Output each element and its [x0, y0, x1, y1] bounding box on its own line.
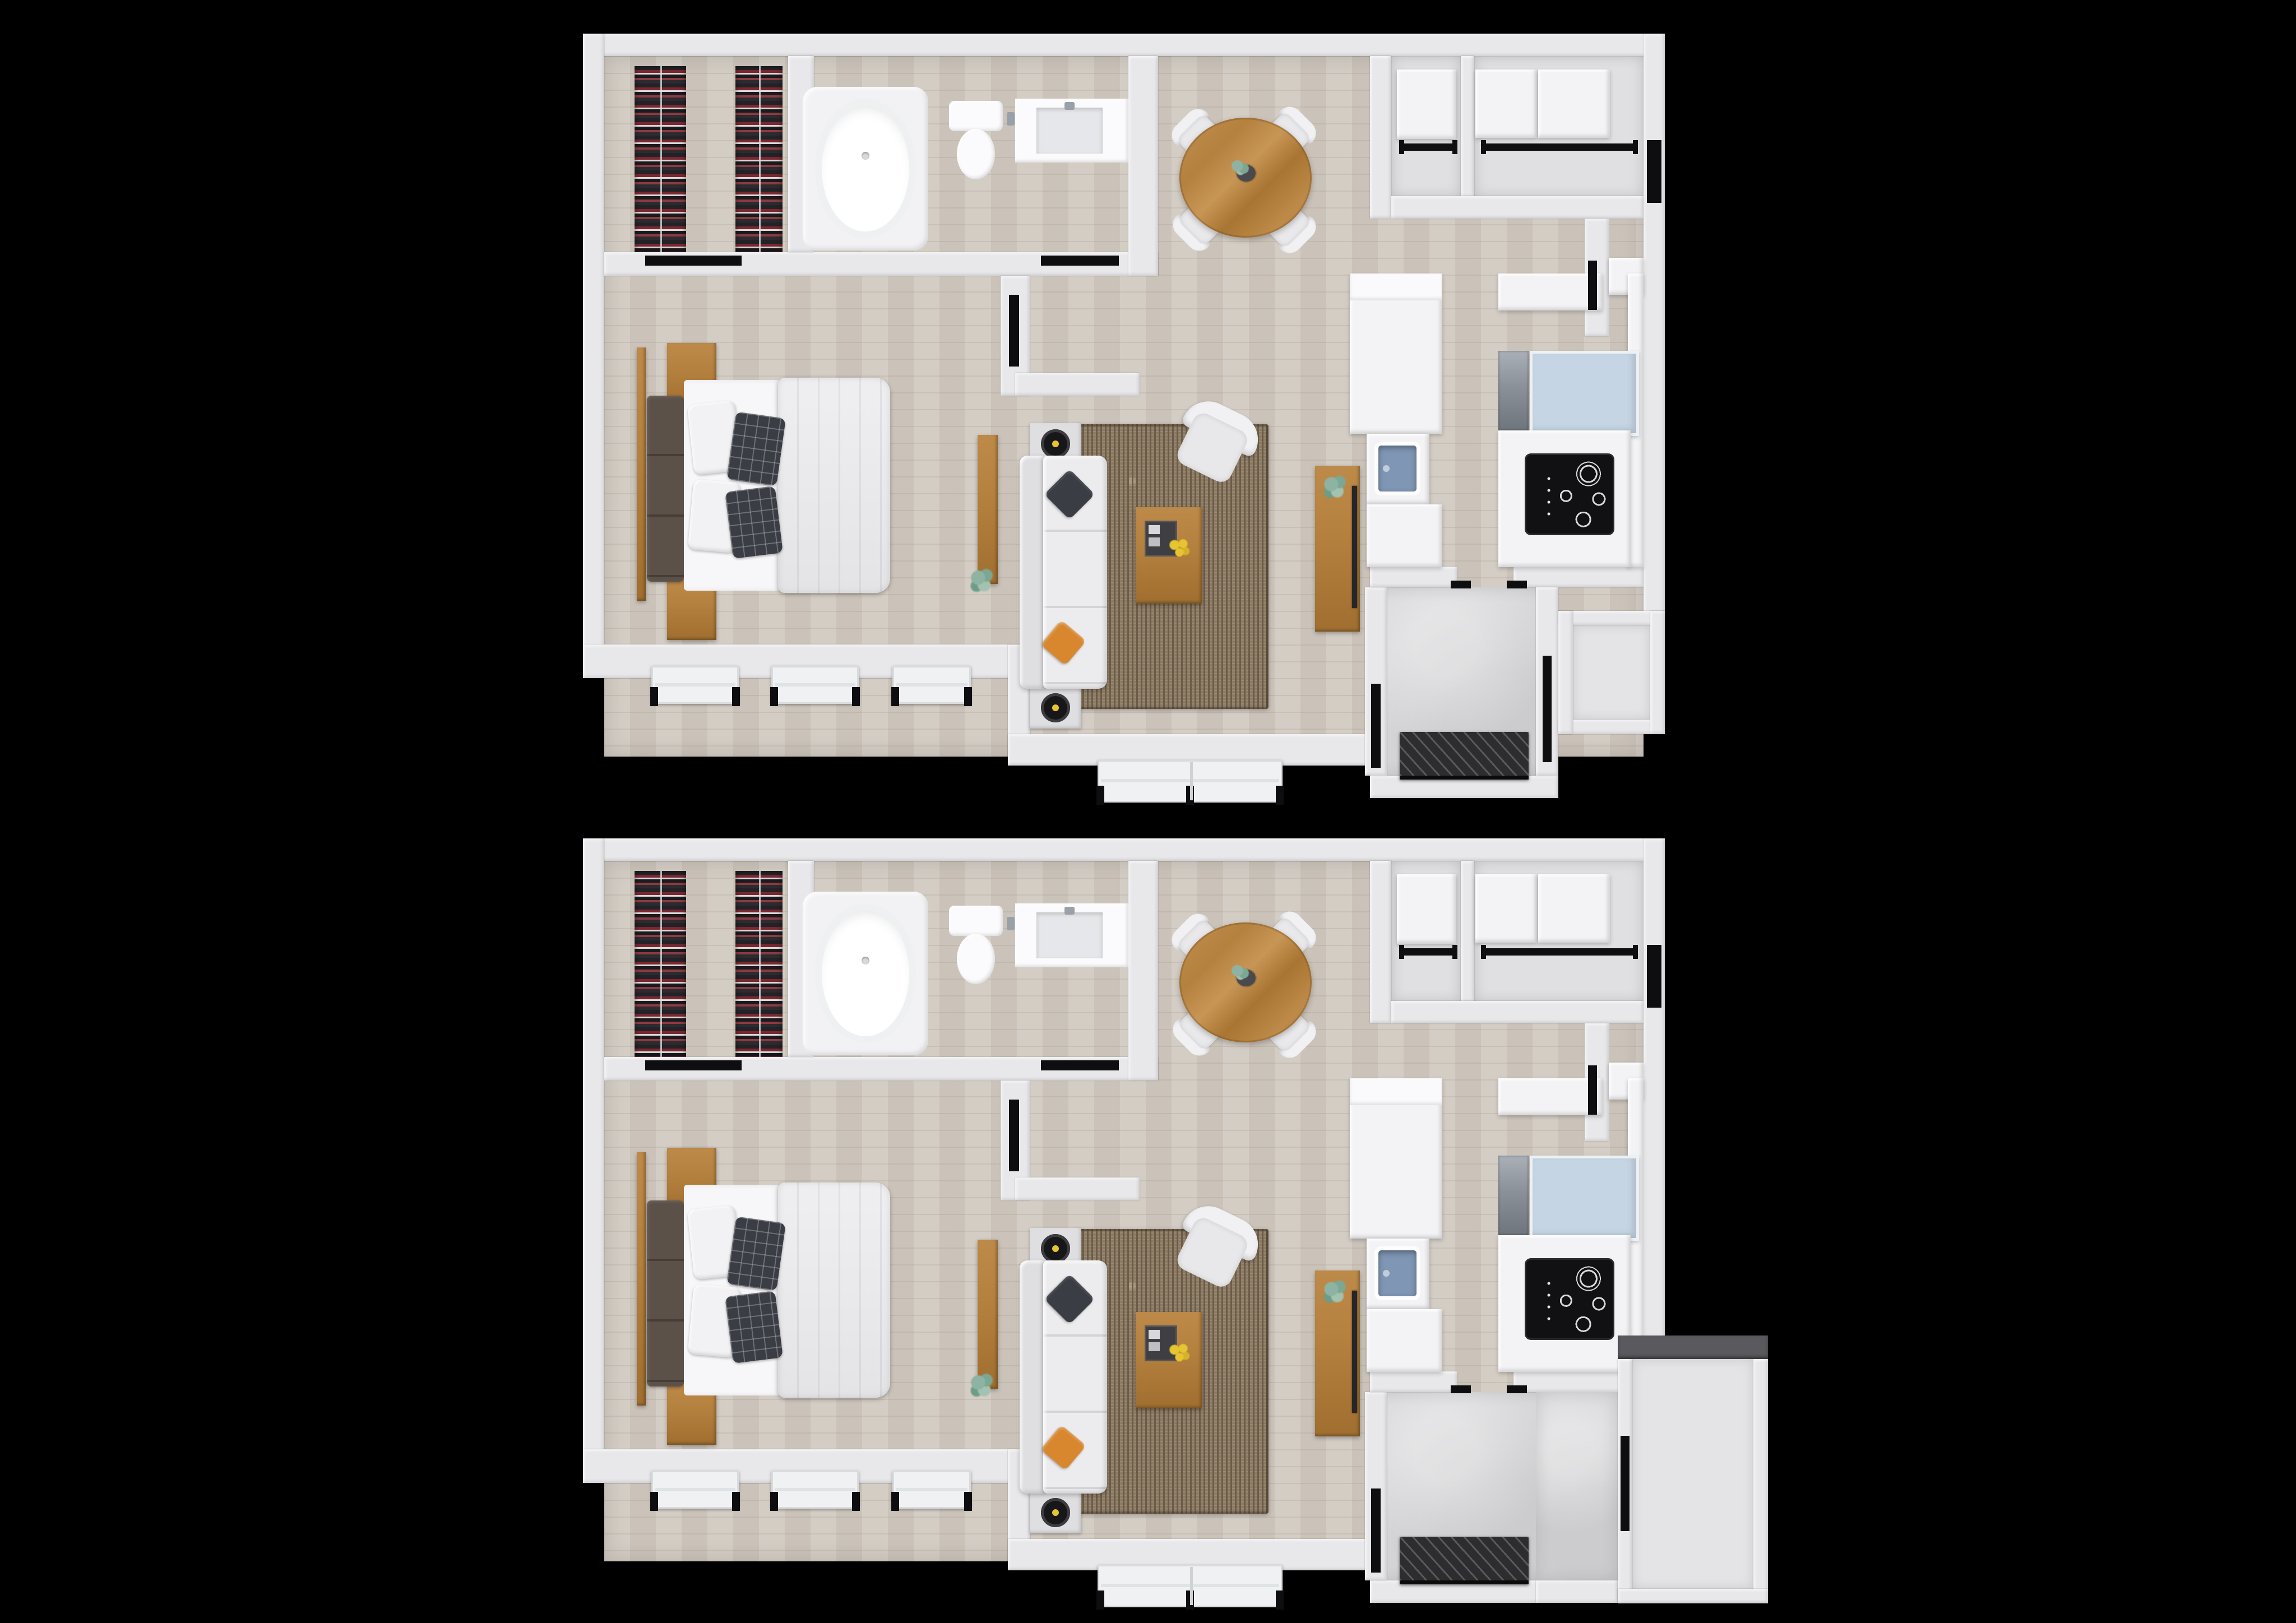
- bed-duvet: [778, 1183, 890, 1398]
- bedroom-door-marker: [1009, 295, 1019, 367]
- kitchen-island: [1350, 1078, 1442, 1239]
- bathroom-vanity: [1015, 903, 1128, 967]
- patio-wall-bottom: [1618, 1589, 1768, 1603]
- bed-frame-rail: [637, 1152, 646, 1406]
- patio-floor: [1632, 1359, 1753, 1589]
- floor-plan-bottom: [583, 838, 1665, 1623]
- clothes-rack: [735, 66, 783, 252]
- clothes-rack: [735, 871, 783, 1057]
- storage-box: [1475, 874, 1537, 943]
- wall-niche-bottom: [1391, 1001, 1644, 1023]
- tv: [1352, 1291, 1357, 1413]
- wall-niche-left: [1370, 861, 1391, 1023]
- window-jamb: [1276, 1590, 1284, 1610]
- wall-living-top: [1015, 373, 1140, 396]
- bathroom-vanity: [1015, 99, 1128, 163]
- porch-wall-bottom: [1558, 720, 1665, 734]
- door-jamb: [1507, 581, 1527, 588]
- island-sink: [1374, 442, 1420, 495]
- clothes-rack: [635, 66, 686, 252]
- entry-door-marker: [1371, 684, 1381, 768]
- window-jamb: [650, 687, 658, 706]
- wall-outer-right: [1644, 34, 1665, 628]
- bathtub-basin: [815, 99, 916, 238]
- tv: [1352, 486, 1357, 608]
- porch-floor: [1573, 625, 1650, 720]
- island-counter-cap: [1350, 273, 1442, 300]
- bedroom-window: [892, 666, 971, 704]
- entry-doormat: [1400, 732, 1529, 780]
- end-table: [1030, 687, 1081, 729]
- wall-outer-left: [583, 838, 604, 1483]
- window-jamb: [852, 1492, 860, 1511]
- wall-niche-divider: [1461, 56, 1474, 197]
- plant: [1321, 1278, 1351, 1306]
- entry-door-marker: [1371, 1488, 1381, 1573]
- window-jamb: [770, 1492, 778, 1511]
- entry-doormat: [1400, 1537, 1529, 1584]
- island-sink-counter: [1367, 1239, 1429, 1309]
- sofa-backrest: [1020, 456, 1045, 689]
- island-sink-counter: [1367, 434, 1429, 504]
- porch-door-marker: [1543, 656, 1552, 762]
- storage-box: [1538, 69, 1610, 138]
- dishwasher: [1498, 1156, 1529, 1235]
- window-jamb: [732, 1492, 740, 1511]
- patio-wall-bottom-ext: [1536, 1580, 1618, 1603]
- bed-headboard: [647, 396, 684, 582]
- door-jamb: [1507, 1385, 1527, 1393]
- coffee-table: [1136, 1312, 1202, 1408]
- bed-duvet: [778, 378, 890, 593]
- patio-door-marker: [1621, 1436, 1630, 1531]
- window-jamb: [852, 687, 860, 706]
- kitchen-door-marker: [1588, 261, 1597, 310]
- canvas: [0, 0, 2296, 1623]
- closet-rod: [1483, 143, 1636, 151]
- living-room-window: [1098, 760, 1283, 803]
- bed-frame-rail: [637, 347, 646, 601]
- entry-floor-extension: [1536, 1392, 1618, 1580]
- wall-bathroom-right: [1128, 861, 1158, 1081]
- front-door-marker: [1647, 140, 1661, 203]
- closet-door-marker: [645, 256, 742, 266]
- closet-rod: [1483, 948, 1636, 956]
- kitchen-upper-cabinet: [1498, 273, 1603, 310]
- wall-outer-top: [583, 34, 1665, 56]
- sofa-backrest: [1020, 1260, 1045, 1494]
- bathtub: [803, 892, 928, 1055]
- window-jamb: [964, 687, 972, 706]
- floor-plan-top: [583, 34, 1665, 818]
- plant: [968, 1371, 998, 1400]
- wall-entry-top-a: [1370, 567, 1457, 587]
- wall-niche-bottom: [1391, 196, 1644, 219]
- kitchen-upper-cabinet: [1498, 1078, 1603, 1115]
- clothes-rack: [635, 871, 686, 1057]
- closet-rod: [1401, 143, 1455, 151]
- refrigerator: [1530, 1156, 1639, 1241]
- porch-wall-right: [1650, 611, 1665, 734]
- window-jamb: [1096, 786, 1104, 805]
- porch-wall-top: [1558, 611, 1665, 625]
- window-jamb: [1276, 786, 1284, 805]
- bathtub-basin: [815, 904, 916, 1043]
- bedroom-window: [651, 1471, 739, 1509]
- dresser-bench: [978, 435, 998, 584]
- wall-living-top: [1015, 1177, 1140, 1200]
- window-jamb: [770, 687, 778, 706]
- window-jamb: [891, 1492, 899, 1511]
- window-jamb: [732, 687, 740, 706]
- island-counter-cap: [1350, 1078, 1442, 1105]
- porch-wall-left: [1558, 611, 1573, 734]
- window-jamb: [964, 1492, 972, 1511]
- plant: [968, 566, 998, 595]
- toilet-bowl: [957, 129, 995, 179]
- bathtub: [803, 87, 928, 251]
- bed-pillow-plaid: [725, 486, 783, 559]
- toilet-paper-holder: [1007, 112, 1015, 126]
- door-jamb: [1451, 1385, 1471, 1393]
- cooktop: [1526, 455, 1613, 534]
- toilet-bowl: [957, 934, 995, 984]
- bedroom-window: [892, 1471, 971, 1509]
- bedroom-window: [651, 666, 739, 704]
- flowers: [1167, 536, 1192, 561]
- window-jamb: [1096, 1590, 1104, 1610]
- bedroom-door-marker: [1009, 1100, 1019, 1171]
- island-sink: [1374, 1246, 1420, 1300]
- bed-pillow-plaid: [726, 1216, 786, 1291]
- patio-wall-right: [1753, 1359, 1768, 1603]
- storage-box: [1397, 874, 1456, 944]
- refrigerator: [1530, 351, 1639, 436]
- vanity-sink: [1036, 108, 1103, 154]
- bathroom-door-marker: [1041, 1060, 1119, 1070]
- flowers: [1167, 1341, 1192, 1366]
- vanity-faucet: [1064, 907, 1075, 915]
- plant: [1321, 473, 1351, 501]
- door-jamb: [1451, 581, 1471, 588]
- window-jamb: [650, 1492, 658, 1511]
- wall-bathroom-right: [1128, 56, 1158, 276]
- window-jamb: [891, 687, 899, 706]
- toilet-paper-holder: [1007, 917, 1015, 930]
- bed-headboard: [647, 1200, 684, 1386]
- dishwasher: [1498, 351, 1529, 430]
- bedroom-window: [771, 1471, 859, 1509]
- closet-rod: [1401, 948, 1455, 956]
- window-mullion: [1190, 1567, 1193, 1605]
- kitchen-lower-counter: [1367, 1309, 1442, 1372]
- table-centerpiece: [1237, 165, 1256, 182]
- bedroom-window: [771, 666, 859, 704]
- wall-outer-top: [583, 838, 1665, 861]
- end-table: [1030, 1492, 1081, 1533]
- coffee-table: [1136, 507, 1202, 604]
- closet-door-marker: [645, 1060, 742, 1070]
- cooktop: [1526, 1260, 1613, 1338]
- bathroom-door-marker: [1041, 256, 1119, 266]
- storage-box: [1475, 69, 1537, 138]
- wall-outer-left: [583, 34, 604, 678]
- toilet-tank: [949, 906, 1003, 936]
- living-room-window: [1098, 1565, 1283, 1607]
- table-centerpiece: [1237, 970, 1256, 986]
- bed-pillow-plaid: [725, 1291, 783, 1364]
- kitchen-lower-counter: [1367, 504, 1442, 567]
- storage-box: [1397, 69, 1456, 139]
- vanity-sink: [1036, 912, 1103, 958]
- kitchen-island: [1350, 273, 1442, 434]
- wall-niche-left: [1370, 56, 1391, 219]
- wall-entry-top-b: [1513, 567, 1644, 587]
- wall-niche-divider: [1461, 861, 1474, 1002]
- front-door-marker: [1647, 945, 1661, 1008]
- dresser-bench: [978, 1240, 998, 1389]
- vanity-faucet: [1064, 102, 1075, 110]
- bed-pillow-plaid: [726, 411, 786, 486]
- toilet-tank: [949, 101, 1003, 131]
- wall-entry-top-a: [1370, 1371, 1457, 1392]
- storage-box: [1538, 874, 1610, 943]
- patio-roof-band: [1618, 1336, 1768, 1359]
- kitchen-door-marker: [1588, 1065, 1597, 1115]
- window-mullion: [1190, 762, 1193, 800]
